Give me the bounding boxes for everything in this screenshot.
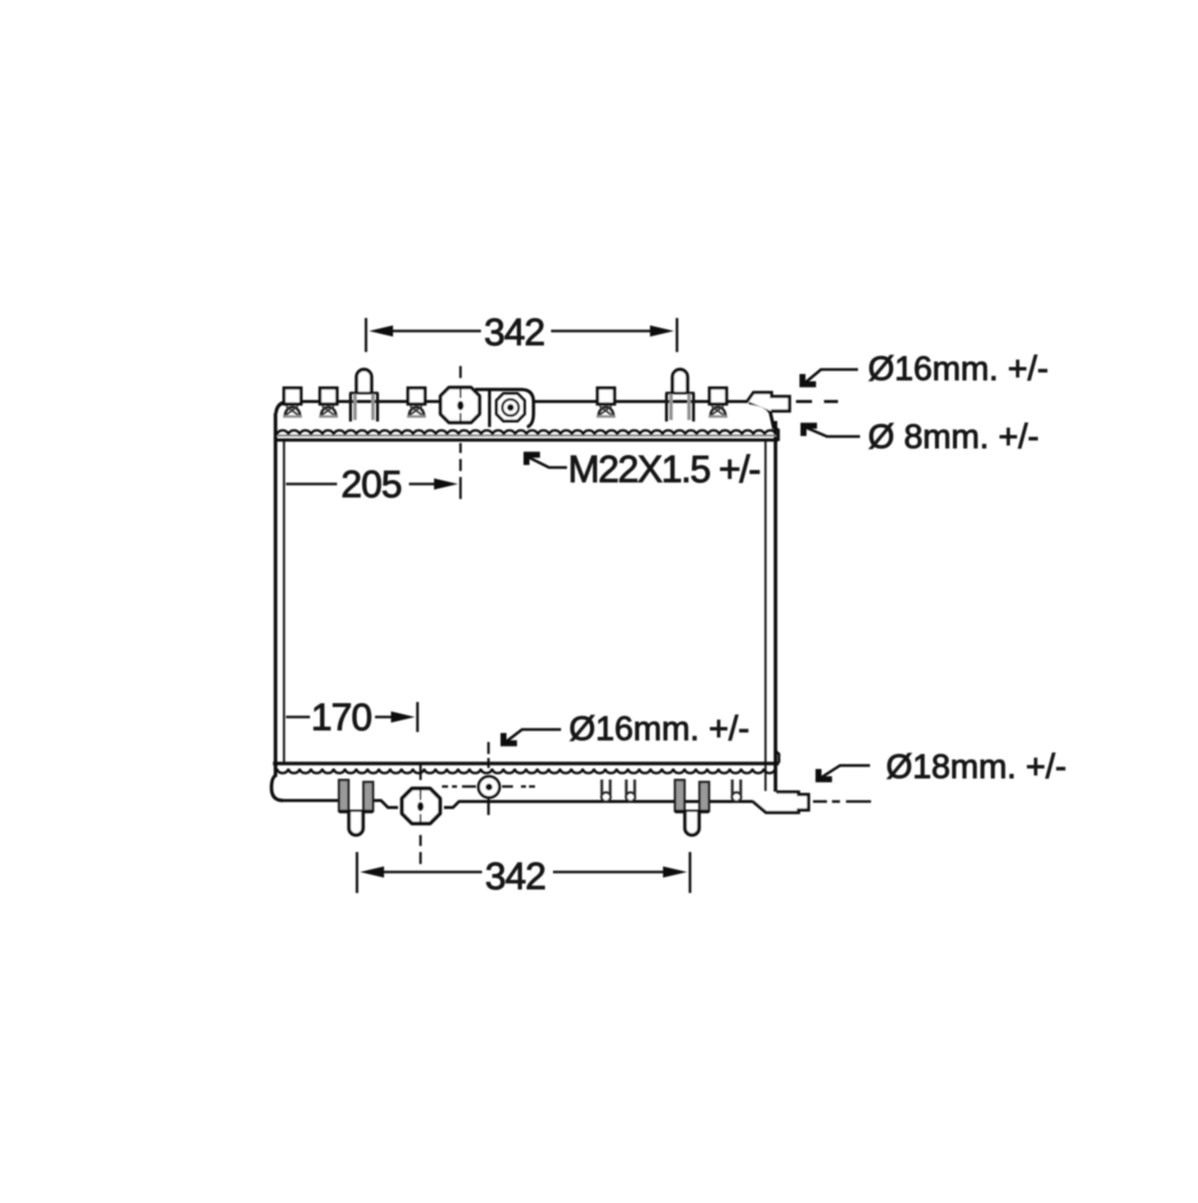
svg-text:205: 205 xyxy=(341,464,401,506)
svg-text:342: 342 xyxy=(485,856,545,898)
svg-text:M22X1.5 +/-: M22X1.5 +/- xyxy=(568,449,760,491)
svg-text:Ø16mm. +/-: Ø16mm. +/- xyxy=(868,350,1048,388)
svg-text:Ø18mm. +/-: Ø18mm. +/- xyxy=(886,748,1066,786)
svg-text:170: 170 xyxy=(311,697,371,739)
svg-text:Ø 8mm. +/-: Ø 8mm. +/- xyxy=(868,418,1039,456)
svg-text:342: 342 xyxy=(484,312,544,354)
svg-text:Ø16mm. +/-: Ø16mm. +/- xyxy=(569,710,749,748)
